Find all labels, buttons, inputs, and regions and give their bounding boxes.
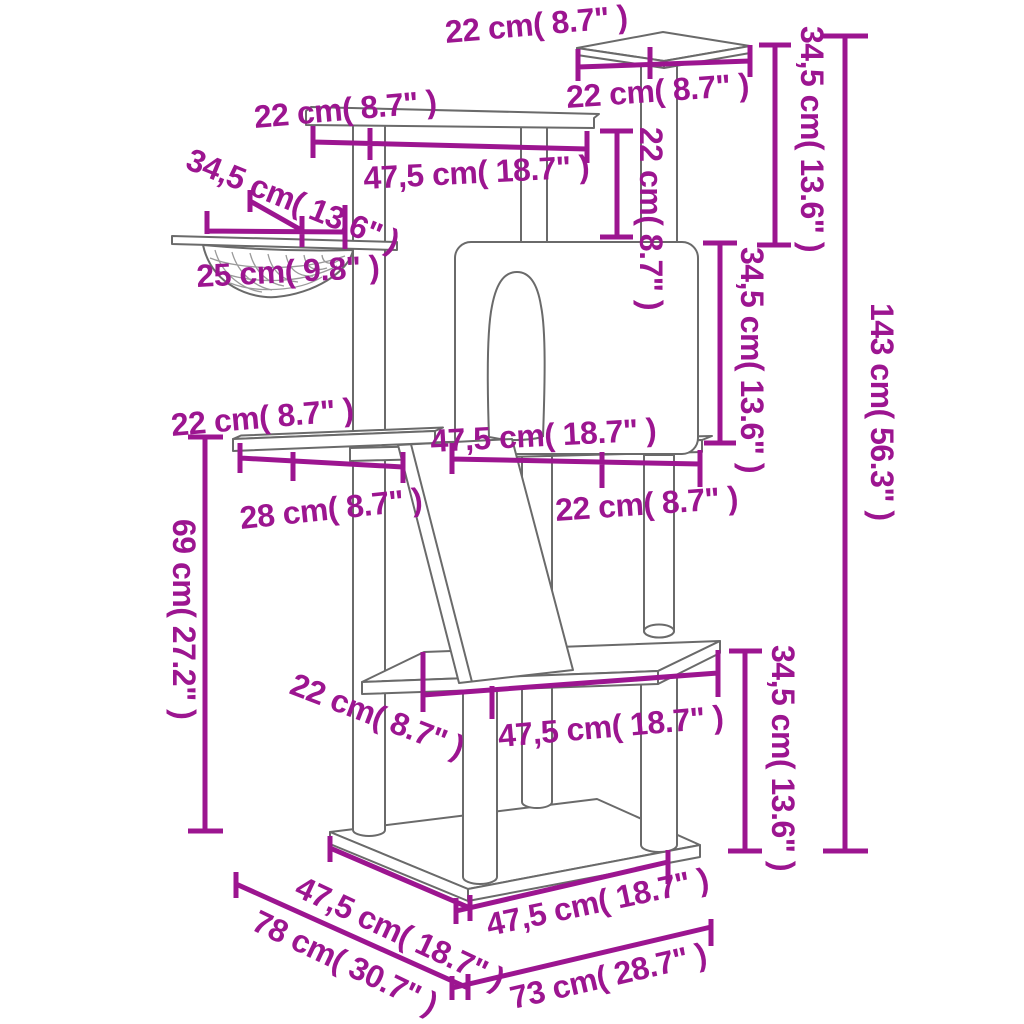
dim-line-top-right-height — [757, 45, 791, 245]
dim-label-condo-height: 34,5 cm( 13.6" ) — [734, 247, 770, 473]
dim-line-condo-height — [703, 243, 737, 443]
dim-label-total-height: 143 cm( 56.3" ) — [864, 303, 900, 521]
dim-label-mid-platform-right: 22 cm( 8.7" ) — [554, 479, 739, 528]
dim-label-top-platform-width: 22 cm( 8.7" ) — [565, 66, 750, 115]
dim-label-base-width-total: 73 cm( 28.7" ) — [506, 936, 709, 1016]
dim-label-lower-height: 34,5 cm( 13.6" ) — [765, 645, 801, 871]
dim-label-top-platform-depth: 22 cm( 8.7" ) — [443, 0, 628, 50]
dim-label-mid-height: 69 cm( 27.2" ) — [166, 519, 202, 719]
dimension-diagram: 22 cm( 8.7" ) 22 cm( 8.7" ) 34,5 cm( 13.… — [0, 0, 1024, 1024]
dim-line-post-gap — [600, 131, 633, 237]
scratching-post-mid-right — [644, 455, 674, 638]
cat-tree-diagram-svg: 22 cm( 8.7" ) 22 cm( 8.7" ) 34,5 cm( 13.… — [0, 0, 1024, 1024]
dim-label-upper-platform-depth: 22 cm( 8.7" ) — [252, 83, 437, 135]
dim-line-lower-height — [728, 651, 762, 851]
dim-label-upper-platform-width: 47,5 cm( 18.7" ) — [362, 148, 590, 196]
dim-label-mid-shelf-width: 28 cm( 8.7" ) — [238, 481, 424, 536]
dim-label-post-gap-height: 22 cm( 8.7" ) — [633, 127, 669, 310]
dim-label-top-right-height: 34,5 cm( 13.6" ) — [794, 26, 830, 252]
